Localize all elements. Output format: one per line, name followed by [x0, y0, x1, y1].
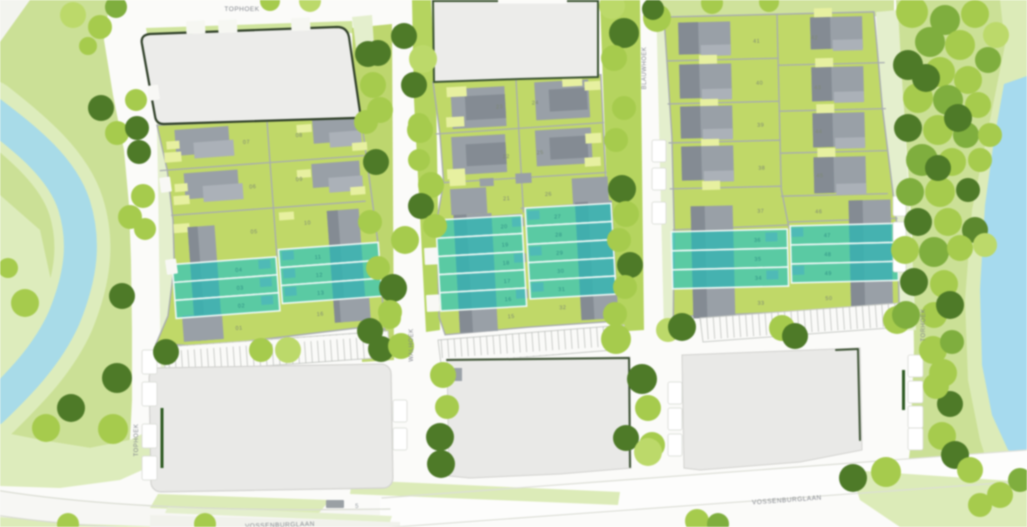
svg-text:21: 21 — [503, 196, 510, 202]
svg-text:27: 27 — [554, 214, 561, 220]
svg-text:38: 38 — [758, 166, 765, 172]
svg-text:16: 16 — [317, 312, 325, 319]
svg-text:30: 30 — [557, 269, 564, 275]
svg-text:50: 50 — [825, 296, 832, 302]
svg-text:23: 23 — [496, 104, 503, 110]
svg-text:41: 41 — [753, 39, 760, 45]
svg-text:BLAUWHOEK: BLAUWHOEK — [642, 47, 648, 90]
svg-text:46: 46 — [815, 209, 822, 215]
svg-text:12: 12 — [316, 272, 324, 279]
svg-text:44: 44 — [815, 129, 822, 135]
svg-text:TOPHOEK: TOPHOEK — [224, 6, 259, 13]
svg-text:39: 39 — [757, 123, 764, 129]
svg-text:02: 02 — [238, 303, 246, 310]
svg-text:09: 09 — [296, 177, 304, 184]
svg-text:04: 04 — [235, 267, 243, 274]
svg-text:22: 22 — [503, 154, 510, 160]
svg-text:24: 24 — [532, 100, 539, 106]
svg-text:20: 20 — [500, 224, 507, 230]
svg-text:43: 43 — [814, 85, 821, 91]
svg-text:07: 07 — [243, 139, 251, 146]
svg-text:13: 13 — [317, 290, 325, 297]
svg-text:45: 45 — [816, 173, 823, 179]
svg-text:47: 47 — [824, 233, 831, 239]
svg-text:05: 05 — [250, 229, 258, 236]
svg-text:16: 16 — [505, 297, 512, 303]
svg-text:19: 19 — [502, 242, 509, 248]
svg-text:32: 32 — [559, 305, 566, 311]
svg-text:35: 35 — [754, 257, 761, 263]
svg-text:18: 18 — [503, 260, 510, 266]
svg-text:33: 33 — [757, 301, 764, 307]
svg-text:10: 10 — [304, 220, 312, 227]
svg-text:TORHOEK: TORHOEK — [921, 308, 927, 341]
svg-text:34: 34 — [755, 276, 762, 282]
svg-text:15: 15 — [508, 314, 515, 320]
svg-text:26: 26 — [545, 192, 552, 198]
svg-text:49: 49 — [825, 271, 832, 277]
svg-text:03: 03 — [236, 285, 244, 292]
svg-text:40: 40 — [756, 81, 763, 87]
svg-text:25: 25 — [536, 150, 543, 156]
svg-text:29: 29 — [556, 250, 563, 256]
svg-text:36: 36 — [754, 238, 761, 244]
svg-text:17: 17 — [504, 279, 511, 285]
svg-text:31: 31 — [558, 287, 565, 293]
svg-text:37: 37 — [757, 209, 764, 215]
svg-text:28: 28 — [555, 232, 562, 238]
svg-text:42: 42 — [811, 35, 818, 41]
svg-text:06: 06 — [249, 184, 257, 191]
svg-text:48: 48 — [824, 252, 831, 258]
svg-text:01: 01 — [235, 325, 243, 332]
svg-text:WALHOEK: WALHOEK — [409, 328, 415, 361]
svg-text:11: 11 — [315, 255, 322, 261]
svg-text:TOPHOEK: TOPHOEK — [134, 424, 140, 457]
svg-text:08: 08 — [295, 133, 303, 140]
